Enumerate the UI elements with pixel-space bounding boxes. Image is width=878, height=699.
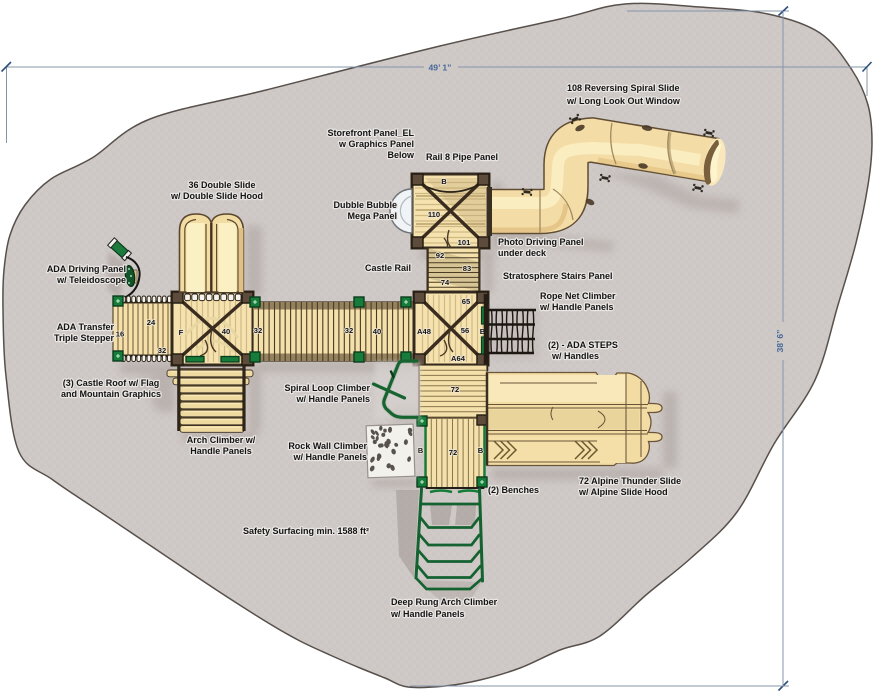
svg-text:Photo Driving Panel: Photo Driving Panel	[498, 237, 584, 247]
svg-text:(3) Castle Roof w/ Flag: (3) Castle Roof w/ Flag	[63, 378, 160, 388]
svg-text:110: 110	[428, 210, 440, 219]
svg-text:65: 65	[462, 297, 471, 306]
svg-text:Spiral Loop Climber: Spiral Loop Climber	[284, 383, 370, 393]
svg-text:72: 72	[449, 448, 457, 457]
svg-text:Below: Below	[387, 150, 415, 160]
svg-text:Rock Wall Climber: Rock Wall Climber	[288, 441, 367, 451]
svg-text:w/ Teleidoscope: w/ Teleidoscope	[56, 275, 126, 285]
svg-text:(2) - ADA STEPS: (2) - ADA STEPS	[548, 340, 618, 350]
svg-text:101: 101	[458, 238, 471, 247]
svg-text:w/ Handle Panels: w/ Handle Panels	[390, 609, 465, 619]
svg-text:40: 40	[222, 327, 230, 336]
svg-text:38’ 6”: 38’ 6”	[775, 330, 785, 353]
svg-text:A48: A48	[417, 327, 431, 336]
svg-text:Stratosphere Stairs Panel: Stratosphere Stairs Panel	[503, 271, 613, 281]
svg-text:w/ Long Look Out Window: w/ Long Look Out Window	[566, 96, 681, 106]
svg-text:Handle Panels: Handle Panels	[190, 446, 252, 456]
svg-text:B: B	[441, 177, 447, 186]
svg-text:w/ Handle Panels: w/ Handle Panels	[292, 452, 367, 462]
svg-text:83: 83	[463, 264, 471, 273]
svg-text:Castle Rail: Castle Rail	[365, 263, 411, 273]
svg-text:F: F	[179, 328, 184, 337]
svg-text:w/ Double Slide Hood: w/ Double Slide Hood	[170, 191, 263, 201]
svg-text:w/ Handle Panels: w/ Handle Panels	[539, 302, 614, 312]
svg-text:Safety Surfacing min. 1588 ft²: Safety Surfacing min. 1588 ft²	[243, 526, 369, 536]
svg-text:32: 32	[345, 326, 353, 335]
svg-text:32: 32	[158, 346, 166, 355]
svg-text:and Mountain Graphics: and Mountain Graphics	[61, 389, 161, 399]
svg-text:72: 72	[451, 385, 459, 394]
svg-text:(2) Benches: (2) Benches	[488, 485, 539, 495]
svg-text:Deep Rung Arch Climber: Deep Rung Arch Climber	[391, 597, 498, 607]
svg-text:w/ Alpine Slide Hood: w/ Alpine Slide Hood	[578, 487, 668, 497]
svg-text:w Graphics Panel: w Graphics Panel	[338, 139, 414, 149]
svg-text:40: 40	[373, 327, 381, 336]
svg-text:108 Reversing Spiral Slide: 108 Reversing Spiral Slide	[567, 83, 680, 93]
svg-text:under deck: under deck	[498, 248, 547, 258]
svg-text:Rail 8 Pipe Panel: Rail 8 Pipe Panel	[426, 152, 498, 162]
svg-text:B: B	[418, 446, 424, 455]
svg-text:ADA Driving Panel: ADA Driving Panel	[47, 264, 126, 274]
svg-text:Triple Stepper: Triple Stepper	[54, 333, 115, 343]
svg-text:A64: A64	[451, 354, 466, 363]
svg-text:Mega Panel: Mega Panel	[347, 211, 397, 221]
svg-text:92: 92	[436, 251, 444, 260]
svg-text:ADA Transfer: ADA Transfer	[57, 322, 115, 332]
svg-text:56: 56	[461, 326, 469, 335]
svg-text:74: 74	[441, 278, 450, 287]
svg-text:w/ Handle Panels: w/ Handle Panels	[295, 394, 370, 404]
svg-text:Storefront Panel_EL: Storefront Panel_EL	[327, 128, 414, 138]
svg-text:32: 32	[254, 326, 262, 335]
svg-text:B: B	[478, 446, 484, 455]
svg-text:72 Alpine Thunder Slide: 72 Alpine Thunder Slide	[579, 476, 681, 486]
svg-text:24: 24	[147, 318, 156, 327]
svg-text:Dubble Bubble: Dubble Bubble	[334, 200, 398, 210]
svg-text:49’ 1”: 49’ 1”	[429, 63, 452, 73]
svg-text:36 Double Slide: 36 Double Slide	[188, 180, 255, 190]
svg-text:Rope Net Climber: Rope Net Climber	[540, 291, 616, 301]
svg-text:16: 16	[116, 330, 124, 339]
svg-text:Arch Climber w/: Arch Climber w/	[187, 435, 256, 445]
svg-text:w/ Handles: w/ Handles	[551, 351, 599, 361]
